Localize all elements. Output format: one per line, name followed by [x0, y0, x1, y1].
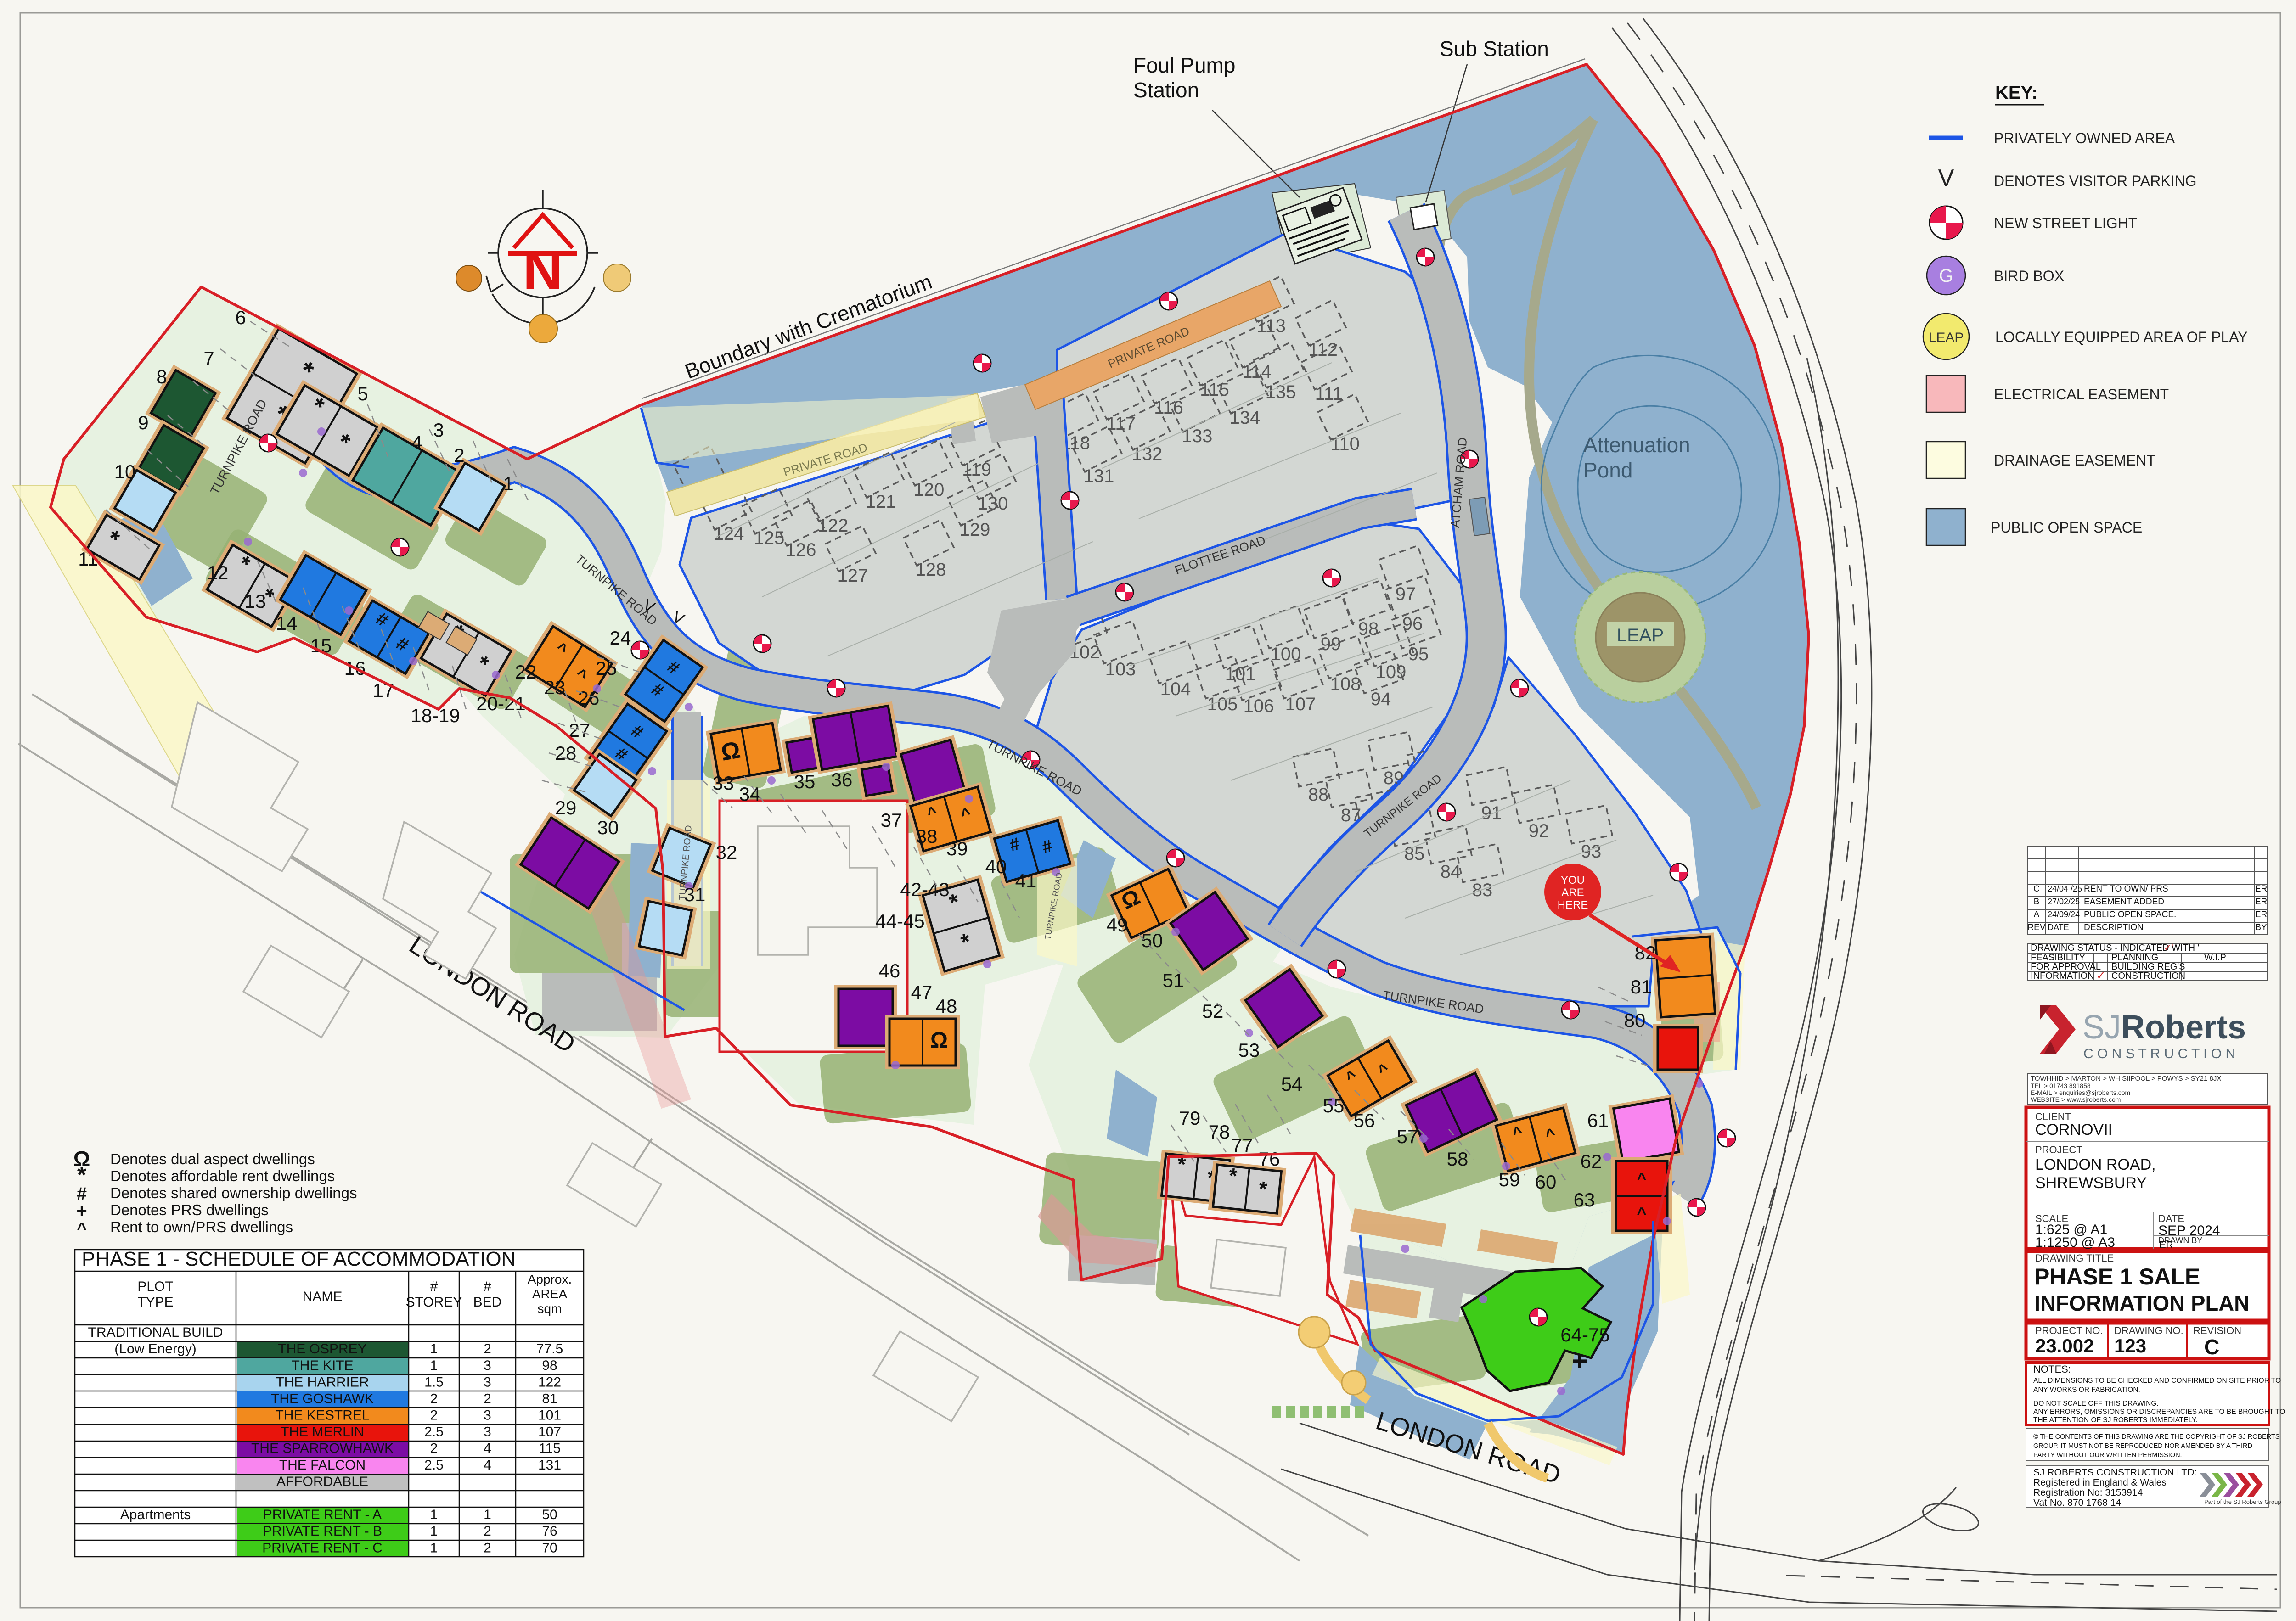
svg-text:Pond: Pond [1583, 458, 1632, 482]
svg-text:THE SPARROWHAWK: THE SPARROWHAWK [251, 1441, 394, 1456]
svg-text:2: 2 [454, 444, 464, 466]
svg-text:Foul Pump: Foul Pump [1133, 53, 1235, 77]
svg-text:54: 54 [1281, 1073, 1303, 1095]
svg-text:127: 127 [838, 566, 868, 586]
svg-text:35: 35 [794, 771, 816, 792]
svg-text:NAME: NAME [303, 1289, 343, 1304]
svg-text:107: 107 [1285, 694, 1316, 714]
svg-text:3: 3 [484, 1425, 491, 1440]
svg-text:THE FALCON: THE FALCON [279, 1458, 366, 1473]
svg-text:3: 3 [484, 1358, 491, 1373]
svg-text:70: 70 [542, 1540, 557, 1555]
svg-text:THE HARRIER: THE HARRIER [276, 1374, 369, 1390]
svg-text:ANY ERRORS, OMISSIONS OR DISCR: ANY ERRORS, OMISSIONS OR DISCREPANCIES A… [2033, 1408, 2285, 1416]
svg-text:132: 132 [1132, 444, 1163, 464]
svg-text:NOTES:: NOTES: [2033, 1363, 2071, 1375]
svg-text:113: 113 [1256, 316, 1286, 336]
svg-text:120: 120 [914, 480, 945, 500]
svg-text:E-MAIL > enquiries@sjroberts: E-MAIL > enquiries@sjroberts.com [2031, 1089, 2130, 1096]
svg-text:97: 97 [1396, 584, 1416, 604]
svg-text:115: 115 [539, 1441, 561, 1456]
svg-text:103: 103 [1105, 659, 1136, 679]
svg-text:ER: ER [2255, 884, 2267, 894]
svg-text:FEASIBILITY: FEASIBILITY [2031, 953, 2085, 963]
svg-text:Denotes dual aspect dwellings: Denotes dual aspect dwellings [110, 1150, 315, 1167]
svg-text:51: 51 [1163, 970, 1184, 991]
svg-text:Station: Station [1133, 78, 1199, 102]
svg-text:Registered in England & Wales: Registered in England & Wales [2033, 1477, 2167, 1488]
svg-text:47: 47 [911, 982, 933, 1003]
svg-text:1: 1 [484, 1507, 491, 1522]
svg-text:27/02/25: 27/02/25 [2048, 897, 2080, 906]
svg-text:116: 116 [1154, 398, 1183, 418]
svg-text:23.002: 23.002 [2035, 1335, 2094, 1357]
svg-text:38: 38 [916, 825, 938, 847]
svg-text:© THE CONTENTS OF THIS DRAWING: © THE CONTENTS OF THIS DRAWING ARE THE C… [2033, 1433, 2280, 1441]
svg-text:✓: ✓ [2096, 970, 2105, 982]
svg-text:ER: ER [2159, 1239, 2173, 1251]
svg-text:131: 131 [538, 1458, 561, 1473]
svg-text:1.5: 1.5 [424, 1374, 444, 1390]
svg-text:THE KITE: THE KITE [291, 1358, 353, 1373]
svg-text:V: V [1938, 165, 1954, 191]
svg-text:G: G [1939, 266, 1953, 286]
svg-text:ARE: ARE [1561, 886, 1584, 899]
svg-text:THE KESTREL: THE KESTREL [275, 1408, 369, 1423]
svg-text:107: 107 [538, 1425, 561, 1440]
svg-text:37: 37 [881, 809, 902, 831]
svg-text:110: 110 [1330, 434, 1360, 454]
svg-text:INFORMATION PLAN: INFORMATION PLAN [2034, 1291, 2250, 1315]
svg-text:123: 123 [2114, 1335, 2146, 1357]
svg-text:PHASE 1 SALE: PHASE 1 SALE [2034, 1264, 2200, 1290]
svg-text:1: 1 [430, 1341, 438, 1357]
svg-text:8: 8 [156, 366, 167, 387]
svg-text:2.5: 2.5 [424, 1425, 444, 1440]
svg-text:122: 122 [818, 516, 849, 536]
svg-text:CORNOVII: CORNOVII [2035, 1121, 2112, 1139]
svg-text:PRIVATELY OWNED AREA: PRIVATELY OWNED AREA [1994, 130, 2175, 146]
svg-text:30: 30 [597, 817, 619, 838]
svg-text:+: + [1571, 1346, 1587, 1376]
svg-text:#: # [484, 1279, 491, 1294]
svg-text:114: 114 [1242, 362, 1272, 382]
svg-text:B: B [2034, 897, 2040, 907]
svg-text:125: 125 [754, 528, 785, 548]
svg-text:119: 119 [962, 460, 991, 480]
svg-text:130: 130 [978, 494, 1008, 514]
svg-text:1: 1 [430, 1540, 438, 1555]
svg-text:2: 2 [484, 1540, 491, 1555]
svg-text:Apartments: Apartments [120, 1507, 191, 1522]
svg-text:124: 124 [714, 524, 744, 544]
svg-text:22: 22 [515, 661, 537, 683]
svg-text:BIRD BOX: BIRD BOX [1994, 268, 2064, 284]
svg-text:ER: ER [2255, 897, 2267, 907]
svg-text:122: 122 [538, 1374, 561, 1390]
svg-text:53: 53 [1238, 1039, 1260, 1061]
svg-text:60: 60 [1535, 1171, 1557, 1193]
svg-text:42-43: 42-43 [900, 879, 949, 900]
svg-text:77.5: 77.5 [536, 1341, 563, 1357]
svg-text:EASEMENT ADDED: EASEMENT ADDED [2084, 897, 2164, 907]
svg-text:PUBLIC OPEN SPACE: PUBLIC OPEN SPACE [1991, 519, 2142, 536]
svg-text:24: 24 [610, 627, 631, 649]
svg-text:THE ATTENTION OF SJ ROBERTS IM: THE ATTENTION OF SJ ROBERTS IMMEDIATELY. [2033, 1416, 2198, 1424]
svg-text:DRAWING TITLE: DRAWING TITLE [2035, 1252, 2114, 1264]
svg-text:BUILDING REG'S: BUILDING REG'S [2111, 962, 2185, 972]
svg-text:TYPE: TYPE [137, 1295, 173, 1310]
svg-text:3: 3 [433, 419, 444, 441]
svg-text:62: 62 [1581, 1150, 1602, 1172]
svg-text:HERE: HERE [1558, 899, 1588, 911]
svg-text:59: 59 [1499, 1169, 1520, 1190]
svg-text:36: 36 [831, 769, 853, 791]
svg-text:4: 4 [411, 432, 422, 453]
svg-text:23: 23 [544, 677, 566, 698]
svg-text:^: ^ [1637, 1204, 1646, 1223]
svg-text:1: 1 [430, 1524, 438, 1539]
svg-text:83: 83 [1472, 880, 1493, 900]
svg-text:2: 2 [430, 1408, 438, 1423]
svg-text:134: 134 [1230, 408, 1261, 428]
svg-text:79: 79 [1179, 1107, 1201, 1129]
svg-text:39: 39 [946, 838, 968, 859]
svg-text:76: 76 [542, 1524, 557, 1539]
svg-text:Registration No: 3153914: Registration No: 3153914 [2033, 1487, 2143, 1498]
svg-text:PRIVATE RENT - A: PRIVATE RENT - A [263, 1507, 382, 1522]
svg-text:Sub Station: Sub Station [1440, 37, 1549, 61]
svg-text:28: 28 [555, 742, 577, 764]
svg-text:80: 80 [1624, 1010, 1646, 1031]
svg-text:GROUP. IT MUST NOT BE REPRODUC: GROUP. IT MUST NOT BE REPRODUCED NOR AME… [2033, 1442, 2252, 1450]
svg-text:44-45: 44-45 [875, 910, 924, 932]
svg-text:108: 108 [1330, 674, 1361, 694]
svg-text:SHREWSBURY: SHREWSBURY [2035, 1174, 2147, 1192]
svg-text:2: 2 [484, 1391, 491, 1406]
svg-text:ER: ER [2255, 910, 2267, 920]
svg-text:SJRoberts: SJRoberts [2082, 1009, 2246, 1046]
svg-text:BED: BED [473, 1295, 502, 1310]
svg-text:ANY WORKS OR FABRICATION.: ANY WORKS OR FABRICATION. [2033, 1386, 2140, 1394]
svg-text:95: 95 [1408, 644, 1429, 664]
svg-text:2: 2 [484, 1524, 491, 1539]
svg-text:84: 84 [1441, 862, 1461, 882]
svg-text:TRADITIONAL BUILD: TRADITIONAL BUILD [88, 1325, 223, 1340]
svg-text:24/09/24: 24/09/24 [2048, 910, 2080, 919]
svg-text:3: 3 [484, 1374, 491, 1390]
svg-text:33: 33 [713, 772, 734, 794]
svg-text:DENOTES VISITOR PARKING: DENOTES VISITOR PARKING [1994, 173, 2197, 189]
svg-text:94: 94 [1371, 689, 1391, 709]
svg-text:13: 13 [245, 590, 266, 612]
svg-text:4: 4 [484, 1458, 491, 1473]
svg-text:C: C [2204, 1335, 2219, 1359]
svg-text:Vat No. 870 1768 14: Vat No. 870 1768 14 [2033, 1498, 2121, 1508]
svg-text:101: 101 [538, 1408, 561, 1423]
svg-text:AFFORDABLE: AFFORDABLE [276, 1474, 368, 1489]
svg-text:PHASE 1 - SCHEDULE OF ACCOMMOD: PHASE 1 - SCHEDULE OF ACCOMMODATION [82, 1248, 516, 1270]
svg-text:135: 135 [1266, 382, 1296, 402]
svg-text:2: 2 [430, 1391, 438, 1406]
svg-text:64-75: 64-75 [1560, 1324, 1609, 1346]
svg-text:FOR APPROVAL: FOR APPROVAL [2031, 962, 2101, 972]
svg-text:4: 4 [484, 1441, 491, 1456]
svg-text:24/04 /25: 24/04 /25 [2048, 884, 2082, 893]
svg-text:Approx.: Approx. [528, 1272, 572, 1286]
svg-text:25: 25 [596, 657, 617, 679]
svg-text:129: 129 [960, 520, 990, 540]
svg-text:YOU: YOU [1561, 874, 1585, 886]
svg-text:117: 117 [1106, 414, 1136, 434]
svg-text:92: 92 [1529, 821, 1549, 841]
svg-text:93: 93 [1581, 841, 1602, 862]
svg-text:C: C [2033, 884, 2040, 894]
svg-text:PUBLIC OPEN SPACE.: PUBLIC OPEN SPACE. [2084, 910, 2176, 920]
svg-text:Denotes PRS dwellings: Denotes PRS dwellings [110, 1201, 269, 1218]
svg-text:10: 10 [114, 461, 136, 482]
svg-text:1: 1 [430, 1507, 438, 1522]
svg-text:50: 50 [542, 1507, 557, 1522]
svg-text:LONDON ROAD,: LONDON ROAD, [2035, 1156, 2156, 1173]
svg-text:DATE: DATE [2048, 923, 2069, 932]
svg-text:14: 14 [276, 612, 298, 634]
svg-text:34: 34 [739, 783, 761, 805]
svg-text:TEL > 01743 891858: TEL > 01743 891858 [2031, 1082, 2091, 1089]
svg-text:78: 78 [1209, 1121, 1230, 1143]
svg-text:26: 26 [578, 687, 600, 709]
svg-text:7: 7 [203, 348, 214, 369]
svg-text:KEY:: KEY: [1995, 83, 2038, 103]
svg-text:PRIVATE RENT - C: PRIVATE RENT - C [262, 1540, 383, 1555]
svg-text:^: ^ [77, 1219, 86, 1238]
svg-text:12: 12 [207, 562, 229, 583]
svg-text:N: N [523, 240, 563, 301]
svg-text:DRAINAGE EASEMENT: DRAINAGE EASEMENT [1994, 452, 2155, 469]
svg-text:91: 91 [1481, 803, 1502, 823]
svg-text:101: 101 [1225, 664, 1256, 684]
svg-text:29: 29 [555, 797, 577, 819]
svg-text:56: 56 [1354, 1110, 1375, 1131]
svg-text:126: 126 [786, 540, 816, 560]
svg-text:A: A [2034, 910, 2040, 920]
svg-text:PROJECT: PROJECT [2035, 1144, 2082, 1155]
svg-text:46: 46 [879, 960, 900, 982]
svg-text:49: 49 [1107, 914, 1128, 936]
svg-text:PRIVATE RENT - B: PRIVATE RENT - B [263, 1524, 382, 1539]
svg-text:2: 2 [430, 1441, 438, 1456]
svg-text:#: # [430, 1279, 438, 1294]
svg-text:3: 3 [484, 1408, 491, 1423]
svg-text:REV: REV [2027, 923, 2045, 932]
svg-text:THE OSPREY: THE OSPREY [278, 1341, 366, 1357]
svg-text:INFORMATION: INFORMATION [2031, 971, 2094, 981]
svg-text:48: 48 [936, 995, 957, 1017]
svg-text:SJ ROBERTS CONSTRUCTION LTD:: SJ ROBERTS CONSTRUCTION LTD: [2033, 1467, 2197, 1478]
svg-text:77: 77 [1232, 1134, 1253, 1156]
svg-text:Part of the SJ Roberts Group: Part of the SJ Roberts Group [2204, 1498, 2281, 1505]
svg-text:PLOT: PLOT [137, 1279, 173, 1294]
svg-text:131: 131 [1084, 466, 1114, 486]
svg-text:61: 61 [1587, 1110, 1609, 1131]
svg-text:PLANNING: PLANNING [2111, 953, 2158, 963]
svg-text:96: 96 [1402, 614, 1423, 634]
svg-text:57: 57 [1397, 1126, 1418, 1147]
svg-text:100: 100 [1271, 644, 1301, 664]
svg-text:98: 98 [1358, 619, 1379, 639]
svg-text:Denotes affordable rent dwelli: Denotes affordable rent dwellings [110, 1167, 335, 1184]
svg-text:✓': ✓' [2164, 943, 2173, 953]
svg-text:DESCRIPTION: DESCRIPTION [2084, 923, 2144, 932]
svg-text:98: 98 [542, 1358, 557, 1373]
svg-text:1: 1 [503, 473, 513, 494]
svg-text:109: 109 [1376, 662, 1407, 682]
svg-text:55: 55 [1323, 1095, 1345, 1116]
svg-text:40: 40 [985, 856, 1007, 877]
svg-text:15: 15 [310, 635, 332, 656]
svg-text:115: 115 [1200, 380, 1229, 400]
svg-text:76: 76 [1259, 1148, 1280, 1170]
svg-text:THE MERLIN: THE MERLIN [281, 1425, 364, 1440]
svg-text:sqm: sqm [538, 1301, 562, 1316]
svg-text:1:1250 @ A3: 1:1250 @ A3 [2035, 1235, 2115, 1250]
svg-text:128: 128 [916, 560, 946, 580]
svg-text:ALL DIMENSIONS TO BE CHECKED A: ALL DIMENSIONS TO BE CHECKED AND CONFIRM… [2033, 1377, 2281, 1385]
svg-text:DRAWING STATUS - INDICATED WIT: DRAWING STATUS - INDICATED WITH ' [2031, 943, 2200, 953]
svg-text:+: + [76, 1201, 87, 1221]
svg-text:BY: BY [2255, 923, 2267, 932]
svg-text:63: 63 [1574, 1189, 1595, 1211]
svg-text:112: 112 [1308, 340, 1338, 360]
svg-text:52: 52 [1202, 1000, 1224, 1022]
svg-text:121: 121 [866, 492, 896, 512]
svg-text:81: 81 [1631, 976, 1652, 998]
svg-text:2: 2 [484, 1341, 491, 1357]
svg-text:(Low Energy): (Low Energy) [114, 1341, 196, 1357]
svg-text:RENT TO OWN/ PRS: RENT TO OWN/ PRS [2084, 884, 2168, 894]
svg-text:TOWHHID > MARTON > WH SIIPOOL: TOWHHID > MARTON > WH SIIPOOL > POWYS > … [2031, 1075, 2221, 1083]
svg-text:DO NOT SCALE OFF THIS DRAWING.: DO NOT SCALE OFF THIS DRAWING. [2033, 1400, 2159, 1408]
svg-text:106: 106 [1244, 696, 1274, 716]
svg-text:111: 111 [1315, 384, 1343, 404]
svg-text:9: 9 [138, 412, 148, 433]
svg-text:NEW STREET LIGHT: NEW STREET LIGHT [1994, 215, 2137, 231]
svg-text:Denotes shared ownership dwell: Denotes shared ownership dwellings [110, 1184, 357, 1201]
svg-text:^: ^ [1637, 1169, 1646, 1188]
svg-text:WEBSITE > www.sjroberts.com: WEBSITE > www.sjroberts.com [2031, 1096, 2121, 1103]
svg-text:99: 99 [1321, 634, 1341, 654]
svg-text:Ω: Ω [930, 1028, 948, 1053]
svg-text:THE GOSHAWK: THE GOSHAWK [271, 1391, 374, 1406]
svg-text:Attenuation: Attenuation [1583, 433, 1690, 457]
svg-text:81: 81 [542, 1391, 557, 1406]
svg-text:CONSTRUCTION: CONSTRUCTION [2111, 971, 2185, 981]
svg-text:AREA: AREA [532, 1287, 568, 1301]
svg-text:88: 88 [1308, 785, 1329, 805]
svg-text:LEAP: LEAP [1617, 625, 1664, 645]
svg-text:STOREY: STOREY [406, 1295, 462, 1310]
svg-text:PARTY WITHOUT OUR WRITTEN PERM: PARTY WITHOUT OUR WRITTEN PERMISSION. [2033, 1452, 2182, 1459]
svg-text:LOCALLY EQUIPPED AREA OF PLAY: LOCALLY EQUIPPED AREA OF PLAY [1995, 329, 2248, 345]
svg-text:2.5: 2.5 [424, 1458, 444, 1473]
svg-text:104: 104 [1160, 679, 1191, 699]
svg-text:LEAP: LEAP [1929, 330, 1964, 345]
svg-text:5: 5 [357, 383, 368, 404]
svg-text:32: 32 [716, 841, 737, 863]
svg-text:Rent to own/PRS dwellings: Rent to own/PRS dwellings [110, 1218, 293, 1235]
svg-text:41: 41 [1015, 870, 1037, 892]
svg-text:ELECTRICAL EASEMENT: ELECTRICAL EASEMENT [1994, 386, 2169, 403]
svg-text:C O N S T R U C T I O N: C O N S T R U C T I O N [2083, 1046, 2235, 1061]
svg-text:W.I.P: W.I.P [2204, 953, 2226, 963]
svg-text:1: 1 [430, 1358, 438, 1373]
svg-text:58: 58 [1447, 1148, 1469, 1170]
